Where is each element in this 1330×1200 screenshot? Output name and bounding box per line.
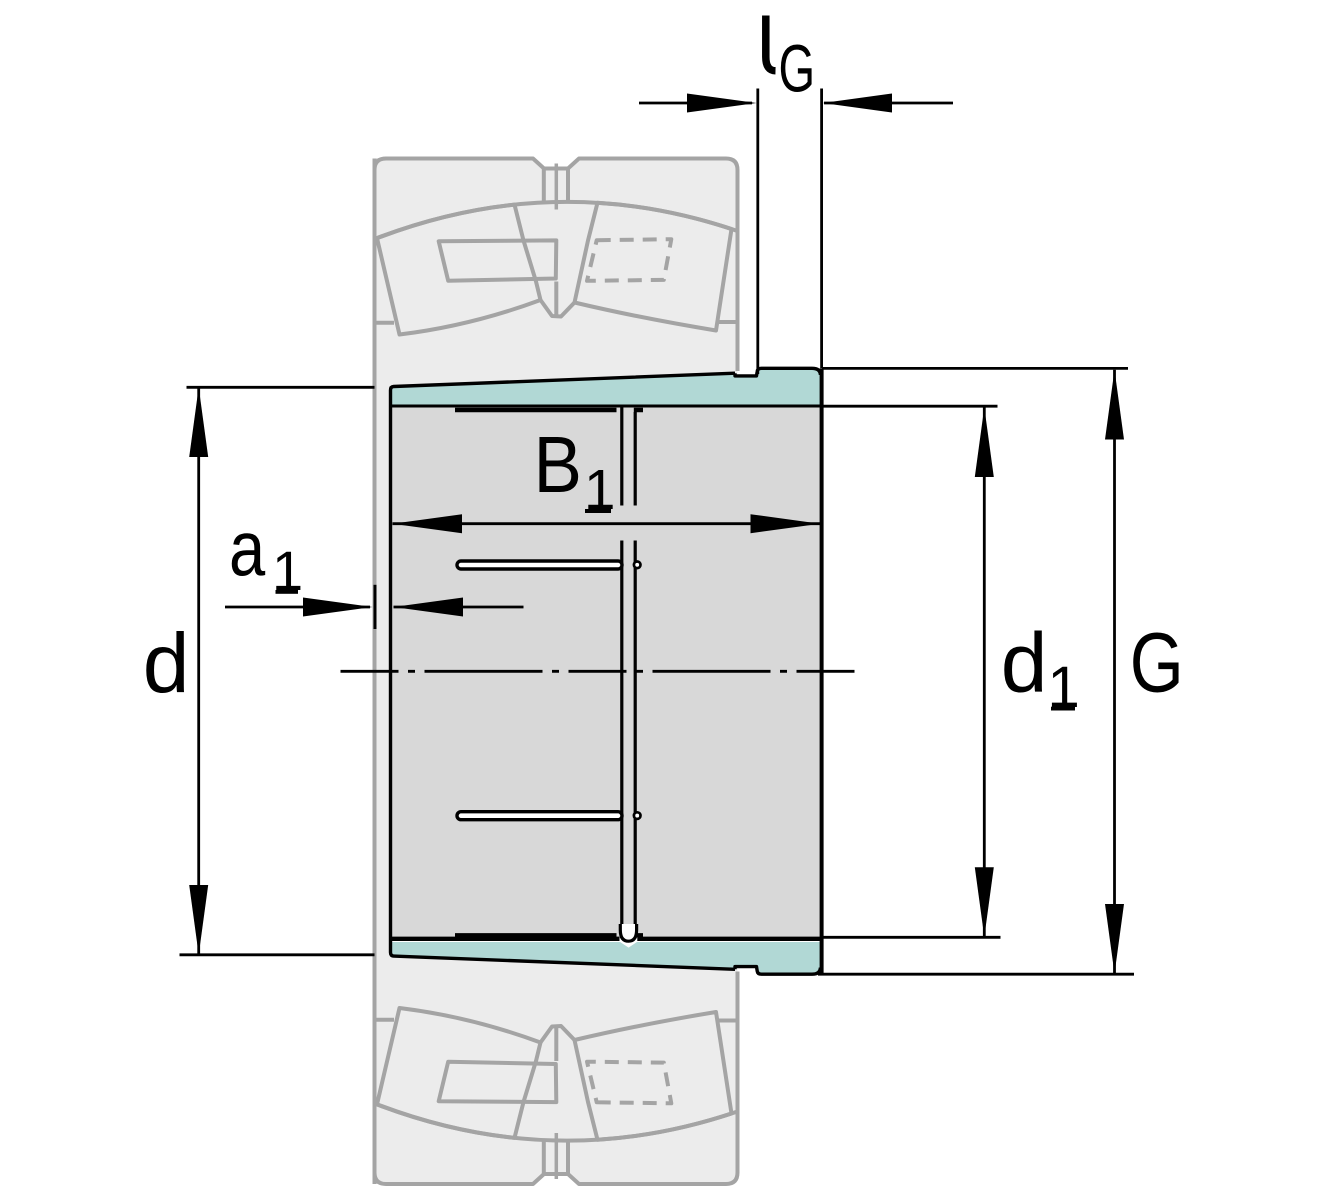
- svg-text:G: G: [1130, 615, 1184, 709]
- svg-text:G: G: [779, 32, 816, 107]
- svg-text:a: a: [229, 504, 266, 592]
- svg-text:d: d: [143, 616, 190, 710]
- svg-text:d: d: [1001, 616, 1048, 710]
- svg-text:B: B: [534, 420, 583, 509]
